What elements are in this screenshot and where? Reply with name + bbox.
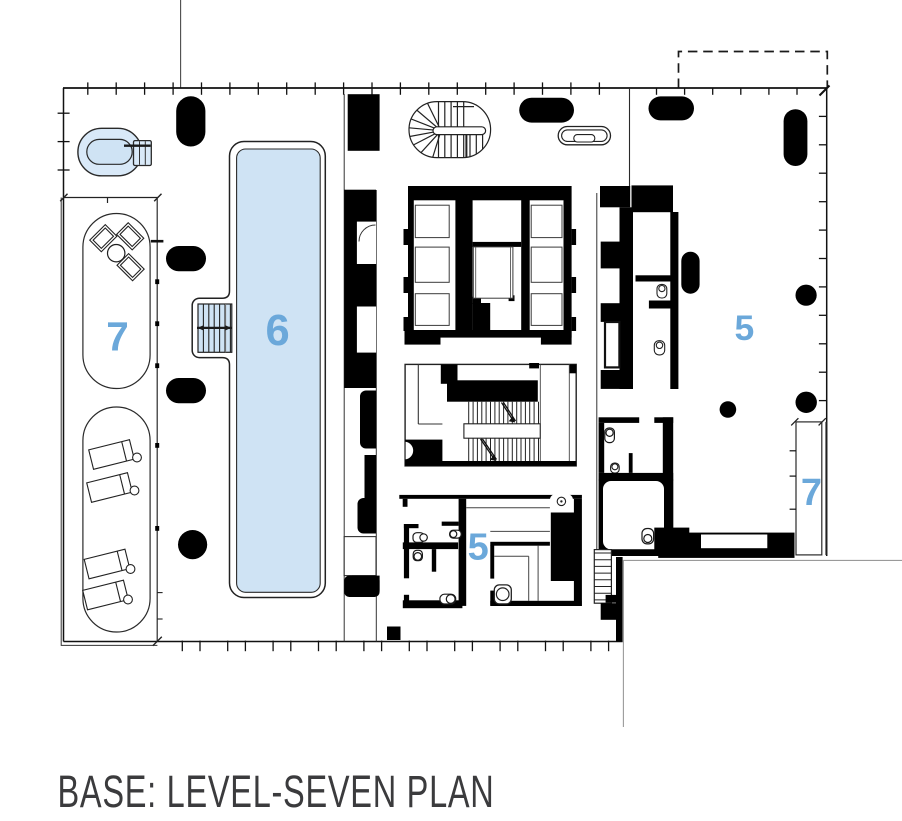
svg-text:BASE: LEVEL-SEVEN PLAN: BASE: LEVEL-SEVEN PLAN xyxy=(58,766,495,817)
svg-text:7: 7 xyxy=(801,472,822,514)
svg-text:6: 6 xyxy=(265,307,289,355)
svg-text:5: 5 xyxy=(735,308,755,348)
svg-text:7: 7 xyxy=(106,314,129,360)
svg-text:5: 5 xyxy=(468,526,489,568)
